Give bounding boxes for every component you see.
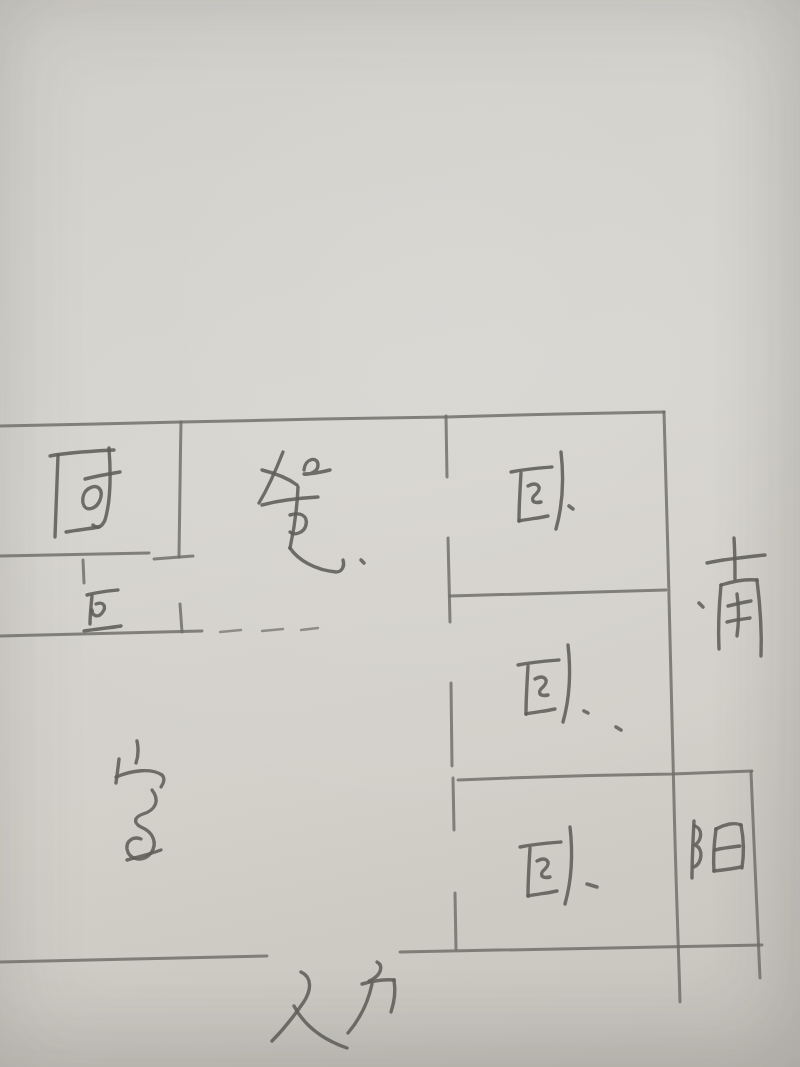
wall-bedroom-divider-1 [450,590,666,596]
stray-dot [699,603,703,607]
bathroom-label: bathroom [84,590,121,631]
stray-dot [584,711,588,713]
bedroom-3-label: bedroom [520,827,597,904]
wall-corridor-segment-4 [453,778,454,830]
wall-bottom-left [0,956,267,962]
stray-dot [616,727,621,730]
main-room-label: main room [116,741,164,860]
wall-bottom-right [400,945,762,952]
balcony-label: balcony [692,821,743,878]
door-opening-dash-1 [220,630,241,632]
bedroom-1-label: bedroom [511,452,573,529]
wall-bathroom-corner-jamb [180,604,182,632]
wall-right [664,412,680,1002]
stray-dash [587,884,597,887]
floor-plan-sketch: kitchen dining bathroom [0,0,800,1067]
wall-balcony-right [751,772,760,978]
paper-photo: kitchen dining bathroom [0,0,800,1067]
wall-corridor-segment-1 [446,416,447,477]
stray-dot [569,506,573,509]
wall-corridor-segment-3 [451,683,452,766]
stray-dot [361,560,364,563]
bedroom-2-label: bedroom [518,645,621,730]
wall-corridor-segment-5 [455,893,456,949]
wall-top [0,412,664,426]
wall-bathroom-bottom [0,631,202,636]
door-opening-dash-3 [301,628,318,630]
entrance-label: entry door [272,962,395,1048]
wall-bathroom-door-jamb [83,560,84,583]
wall-kitchen-divider-foot [154,556,193,559]
south-orientation-label: south [699,538,765,656]
wall-bedroom-divider-2-balcony-top [458,771,752,780]
walls [0,412,762,1002]
kitchen-label: kitchen [50,448,120,537]
door-opening-dash-2 [262,629,283,631]
wall-corridor-segment-2 [448,538,450,622]
wall-kitchen-divider [179,422,181,557]
dining-label: dining [259,452,364,572]
wall-kitchen-bottom [0,553,149,556]
